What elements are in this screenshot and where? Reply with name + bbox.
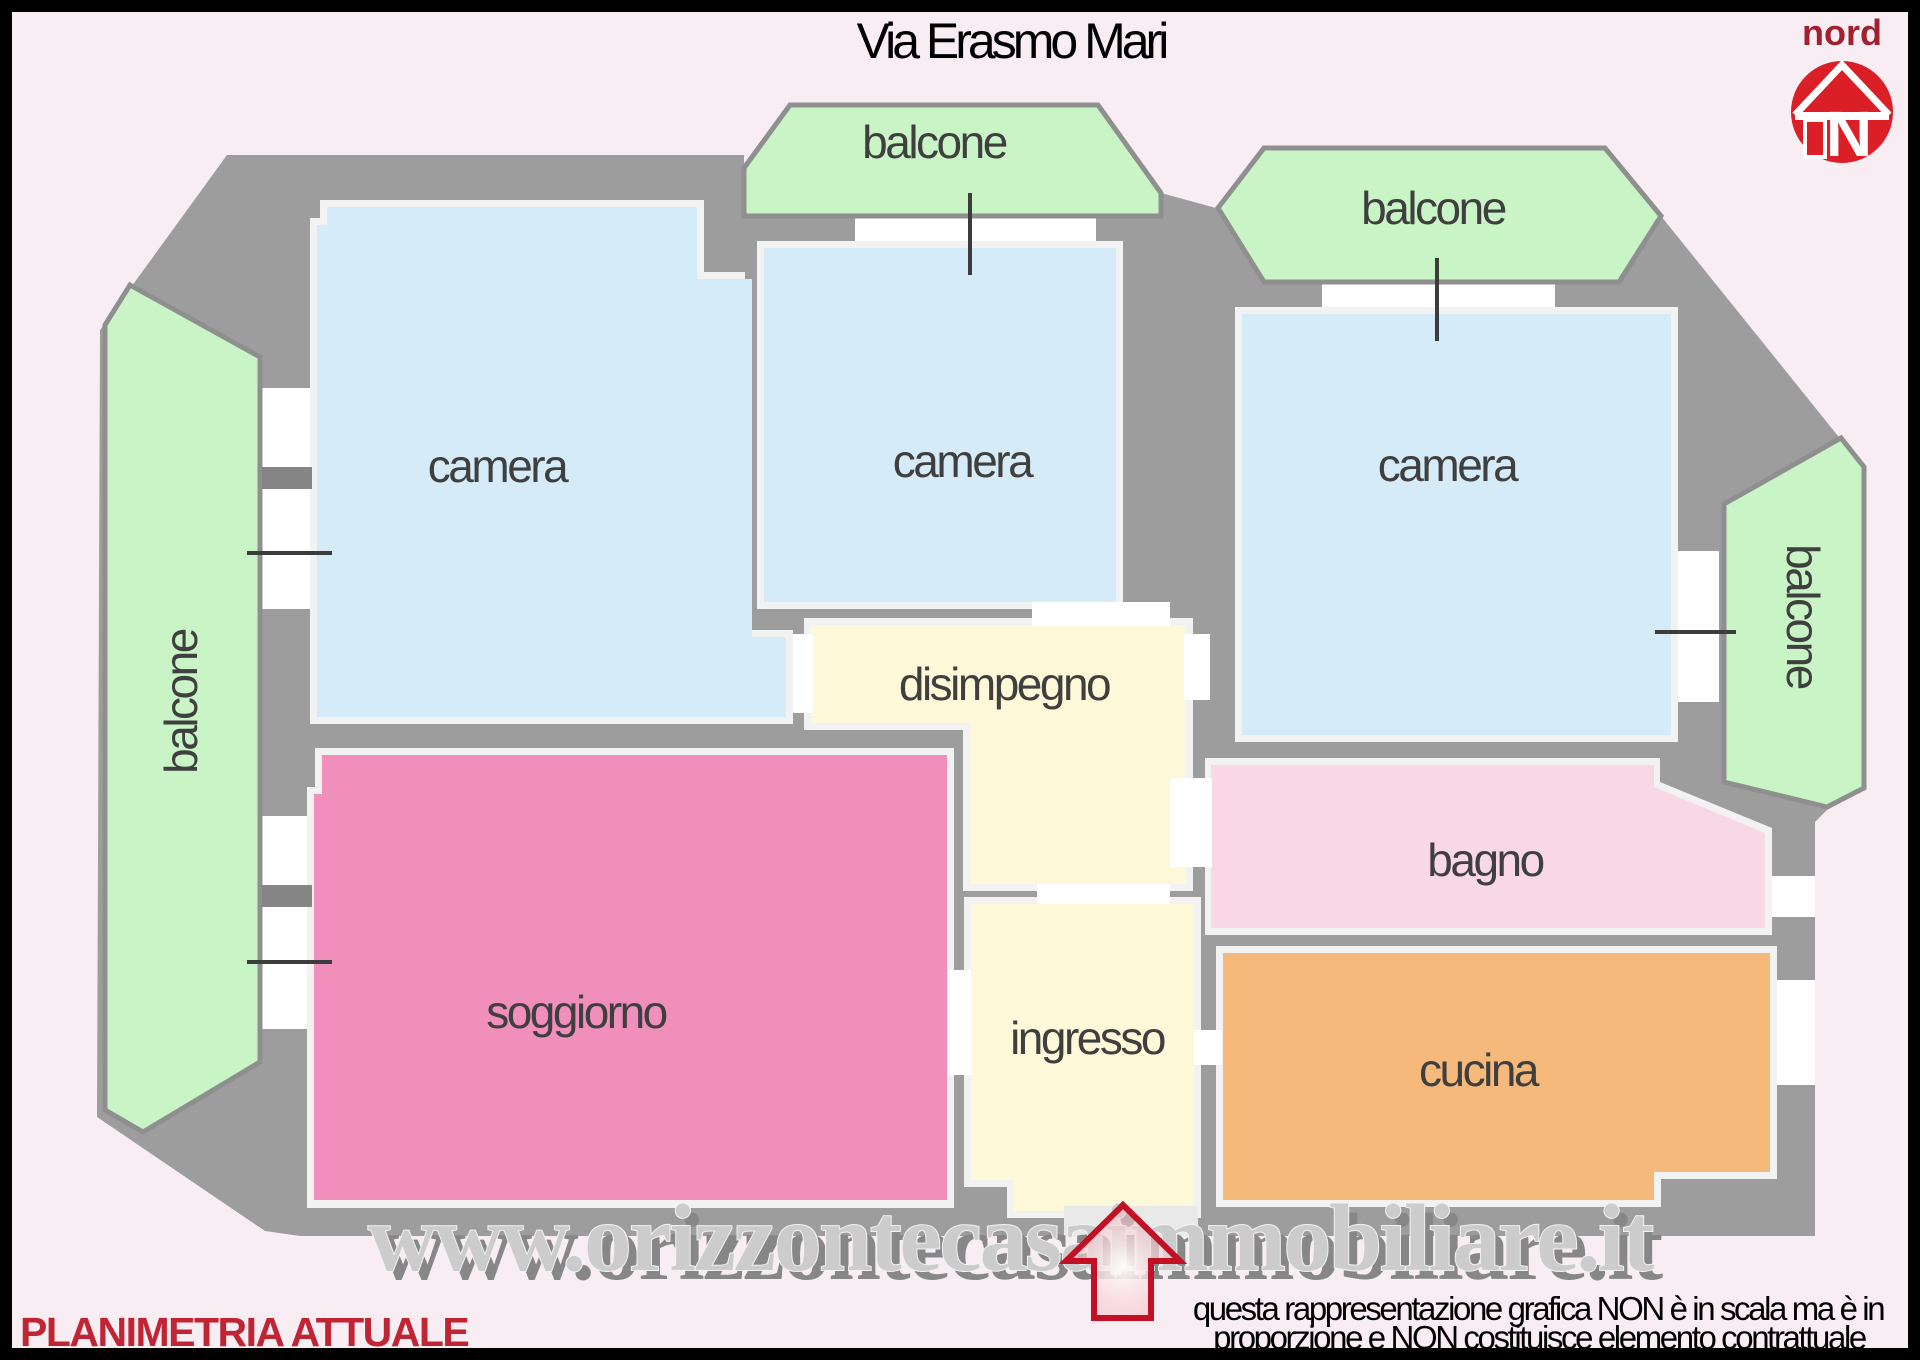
svg-text:www.orizzontecasaimmobiliare.i: www.orizzontecasaimmobiliare.it: [368, 1185, 1654, 1291]
svg-text:balcone: balcone: [1777, 544, 1829, 689]
svg-text:PLANIMETRIA ATTUALE: PLANIMETRIA ATTUALE: [20, 1309, 468, 1355]
svg-text:camera: camera: [428, 440, 569, 492]
svg-text:Via Erasmo Mari: Via Erasmo Mari: [857, 13, 1167, 69]
svg-text:camera: camera: [893, 435, 1034, 487]
svg-text:balcone: balcone: [862, 116, 1007, 168]
svg-text:cucina: cucina: [1419, 1044, 1540, 1096]
svg-text:bagno: bagno: [1427, 834, 1543, 886]
svg-text:proporzione e NON costituisce: proporzione e NON costituisce elemento c…: [1213, 1319, 1866, 1356]
svg-text:balcone: balcone: [155, 629, 207, 774]
svg-text:disimpegno: disimpegno: [899, 658, 1110, 710]
svg-text:ingresso: ingresso: [1010, 1012, 1165, 1064]
svg-text:N: N: [1826, 98, 1872, 170]
svg-text:balcone: balcone: [1361, 182, 1506, 234]
svg-text:camera: camera: [1378, 439, 1519, 491]
svg-text:soggiorno: soggiorno: [486, 986, 666, 1038]
svg-text:nord: nord: [1802, 12, 1882, 53]
